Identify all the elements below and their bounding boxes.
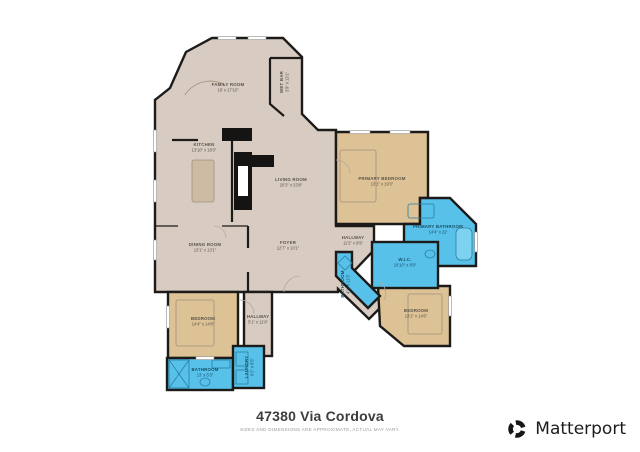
room-label-bedroom-west: BEDROOM14'4" x 14'8" bbox=[191, 316, 215, 326]
room-label-living-room: LIVING ROOM20'3" x 23'8" bbox=[275, 177, 307, 187]
matterport-wordmark: Matterport bbox=[535, 419, 626, 439]
room-label-wet-bar: WET BAR3'9" x 13'1" bbox=[279, 70, 289, 93]
matterport-logo-icon bbox=[506, 418, 528, 440]
room-label-laundry: LAUNDRY6'2" x 8'5" bbox=[244, 356, 254, 379]
floor-plan-canvas: FAMILY ROOM18' x 17'10"WET BAR3'9" x 13'… bbox=[0, 0, 640, 452]
room-label-hallway-lower: HALLWAY5'1" x 11'9" bbox=[247, 314, 269, 324]
floor-plan-page: FAMILY ROOM18' x 17'10"WET BAR3'9" x 13'… bbox=[0, 0, 640, 452]
room-label-kitchen: KITCHEN13'10" x 18'3" bbox=[192, 142, 217, 152]
matterport-logo: Matterport bbox=[506, 418, 626, 440]
room-label-bedroom-east: BEDROOM13'1" x 14'6" bbox=[404, 308, 428, 318]
room-label-hall-bathroom: BATHROOM4'2" x 11'3" bbox=[340, 270, 350, 297]
room-label-hallway-upper: HALLWAY11'2" x 9'9" bbox=[342, 235, 364, 245]
